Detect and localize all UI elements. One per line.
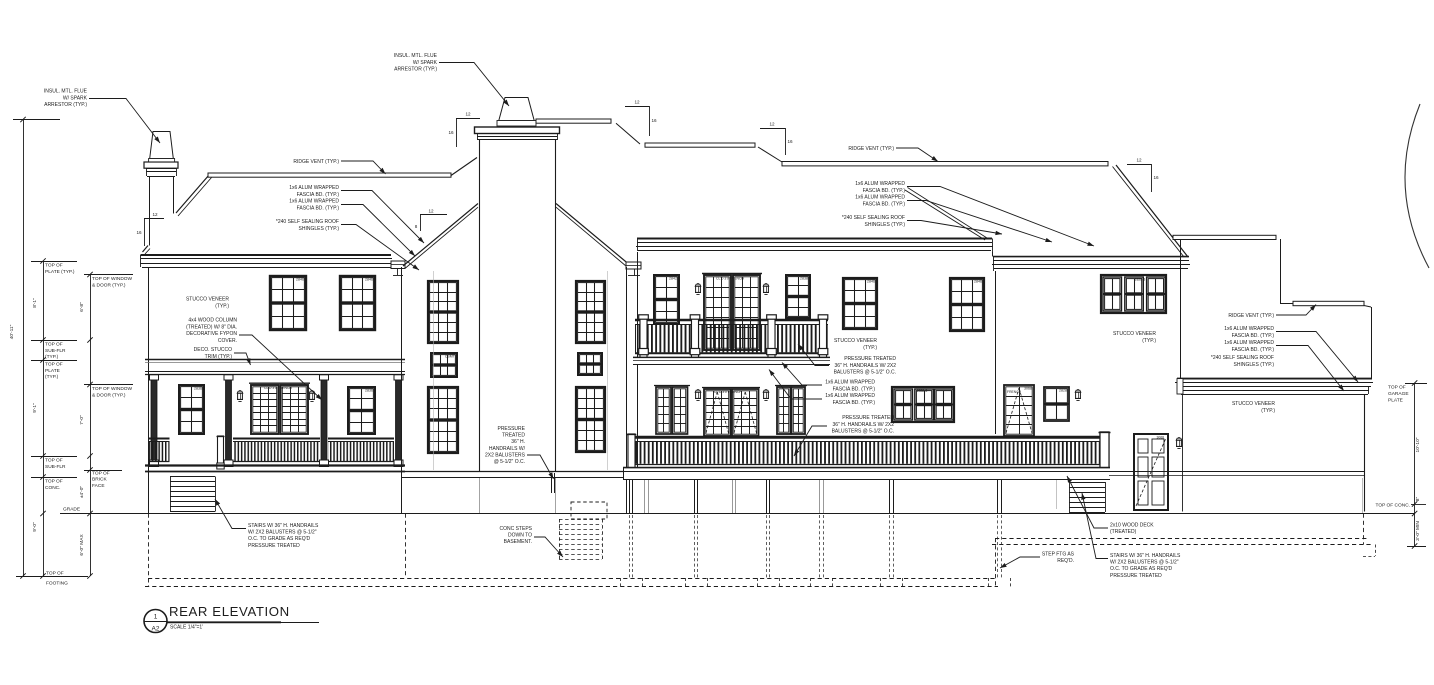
svg-text:FASCIA BD. (TYP.): FASCIA BD. (TYP.) [1232,347,1275,353]
svg-text:16: 16 [651,118,657,123]
svg-text:PLATE: PLATE [45,368,60,374]
svg-text:1x6 ALUM WRAPPED: 1x6 ALUM WRAPPED [825,380,875,386]
svg-text:CSMT: CSMT [445,355,456,359]
svg-text:2828-3: 2828-3 [1135,278,1146,282]
svg-text:SHINGLES (TYP.): SHINGLES (TYP.) [1234,362,1275,368]
svg-text:*240 SELF SEALING ROOF: *240 SELF SEALING ROOF [276,219,339,225]
svg-text:FASCIA BD. (TYP.): FASCIA BD. (TYP.) [833,386,876,392]
svg-text:TOP OF: TOP OF [45,263,63,269]
svg-text:GRADE: GRADE [63,507,80,513]
svg-text:PLATE: PLATE [1388,397,1403,403]
svg-text:SHINGLES (TYP.): SHINGLES (TYP.) [865,222,906,228]
svg-text:DECORATIVE FYPON: DECORATIVE FYPON [186,331,237,337]
svg-text:PLATE (TYP.): PLATE (TYP.) [45,269,75,275]
svg-text:36" H. HANDRAILS W/ 2X2: 36" H. HANDRAILS W/ 2X2 [834,363,896,369]
svg-text:W/ SPARK: W/ SPARK [413,60,438,66]
svg-text:12: 12 [465,112,471,117]
svg-text:TOP OF WINDOW: TOP OF WINDOW [92,276,133,282]
svg-text:7'-0": 7'-0" [79,415,85,425]
svg-text:2846: 2846 [867,280,875,284]
svg-text:3'-0" MIN: 3'-0" MIN [1415,521,1421,541]
svg-text:8'-1": 8'-1" [32,298,38,308]
svg-text:SUB-FLR: SUB-FLR [45,464,66,470]
svg-text:TOP OF: TOP OF [45,458,63,464]
svg-text:3068: 3068 [1156,436,1164,440]
svg-text:SCALE 1/4"=1': SCALE 1/4"=1' [170,625,203,631]
svg-text:CL'D 3'0 FRENCH: CL'D 3'0 FRENCH [264,386,292,390]
svg-text:PRESSURE: PRESSURE [497,426,525,432]
svg-text:RIDGE VENT (TYP.): RIDGE VENT (TYP.) [1228,313,1274,319]
svg-text:FASCIA BD. (TYP.): FASCIA BD. (TYP.) [863,201,906,207]
svg-text:& DOOR (TYP.): & DOOR (TYP.) [92,392,126,398]
svg-text:2842: 2842 [669,277,677,281]
svg-text:6'-8": 6'-8" [79,302,85,312]
svg-text:STUCCO VENEER: STUCCO VENEER [834,338,877,344]
svg-text:TOP OF: TOP OF [45,479,63,485]
svg-text:10'-10": 10'-10" [1415,437,1421,452]
svg-text:*240 SELF SEALING ROOF: *240 SELF SEALING ROOF [842,215,905,221]
svg-text:2846: 2846 [365,278,373,282]
svg-text:CL'D 3'0 FRENCH: CL'D 3'0 FRENCH [714,390,742,394]
svg-text:TOP OF: TOP OF [45,342,63,348]
svg-text:(TYP.): (TYP.) [45,374,59,380]
svg-text:RIDGE VENT (TYP.): RIDGE VENT (TYP.) [848,146,894,152]
svg-text:1: 1 [154,614,158,621]
svg-text:SHINGLES (TYP.): SHINGLES (TYP.) [299,226,340,232]
svg-text:STEP FTG AS: STEP FTG AS [1042,552,1075,558]
svg-text:16: 16 [448,130,454,135]
svg-text:FASCIA BD. (TYP.): FASCIA BD. (TYP.) [833,400,876,406]
svg-text:STUCCO VENEER: STUCCO VENEER [1113,331,1156,337]
svg-text:TOP OF CONC.: TOP OF CONC. [1376,503,1410,509]
svg-text:& DOOR (TYP.): & DOOR (TYP.) [92,282,126,288]
svg-text:PRESSURE TREATED: PRESSURE TREATED [844,356,896,362]
svg-text:2828: 2828 [1059,389,1067,393]
svg-text:12: 12 [634,100,640,105]
svg-text:(TYP.): (TYP.) [215,303,229,309]
svg-text:TREATED: TREATED [502,433,525,439]
svg-text:FRENCH: FRENCH [1007,390,1022,394]
svg-text:TOP OF: TOP OF [46,571,64,577]
svg-text:12: 12 [152,212,158,217]
svg-text:1x6 ALUM WRAPPED: 1x6 ALUM WRAPPED [1224,340,1274,346]
svg-text:*240 SELF SEALING ROOF: *240 SELF SEALING ROOF [1211,355,1274,361]
svg-text:W/ SPARK: W/ SPARK [63,95,88,101]
svg-text:1x6 ALUM WRAPPED: 1x6 ALUM WRAPPED [1224,326,1274,332]
svg-text:2838: 2838 [800,277,808,281]
svg-text:40'-11": 40'-11" [9,324,15,339]
svg-text:1x6 ALUM WRAPPED: 1x6 ALUM WRAPPED [289,185,339,191]
svg-text:GARAGE: GARAGE [1388,391,1409,397]
svg-text:W/ 2X2 BALUSTERS @ 5-1/2": W/ 2X2 BALUSTERS @ 5-1/2" [1110,560,1179,566]
svg-text:INSUL. MTL. FLUE: INSUL. MTL. FLUE [44,89,88,95]
svg-text:16: 16 [136,230,142,235]
svg-text:2846: 2846 [296,278,304,282]
svg-text:16: 16 [787,139,793,144]
svg-text:TOP OF WINDOW: TOP OF WINDOW [92,386,133,392]
svg-text:SUB-FLR: SUB-FLR [45,348,66,354]
svg-text:16: 16 [1153,175,1159,180]
svg-text:6'-0" MAX: 6'-0" MAX [79,534,85,556]
svg-text:FACE: FACE [92,483,105,489]
svg-text:1x6 ALUM WRAPPED: 1x6 ALUM WRAPPED [855,181,905,187]
svg-text:(TYP.): (TYP.) [863,345,877,351]
svg-text:ARRESTOR (TYP.): ARRESTOR (TYP.) [44,102,87,108]
svg-text:2832-3: 2832-3 [917,389,928,393]
svg-text:PRESSURE TREATED: PRESSURE TREATED [842,415,894,421]
svg-text:(TREATED) W/ 8" DIA.: (TREATED) W/ 8" DIA. [186,324,237,330]
svg-text:DECO. STUCCO: DECO. STUCCO [194,347,232,353]
svg-text:A2: A2 [152,626,160,633]
svg-text:(TYP.): (TYP.) [1261,408,1275,414]
svg-text:INSUL. MTL. FLUE: INSUL. MTL. FLUE [394,53,438,59]
svg-text:@ 5-1/2" O.C.: @ 5-1/2" O.C. [494,459,525,465]
svg-text:CONC STEPS: CONC STEPS [499,526,532,532]
svg-text:2836: 2836 [365,389,373,393]
svg-text:(TYP.): (TYP.) [1142,338,1156,344]
svg-text:1x6 ALUM WRAPPED: 1x6 ALUM WRAPPED [855,195,905,201]
svg-text:FOOTING: FOOTING [46,581,68,587]
svg-text:2846: 2846 [974,280,982,284]
svg-text:CL'D 3'0 FRENCH: CL'D 3'0 FRENCH [716,277,744,281]
svg-text:12: 12 [428,209,434,214]
svg-text:DOWN TO: DOWN TO [508,533,532,539]
svg-text:BALUSTERS @ 5-1/2" O.C.: BALUSTERS @ 5-1/2" O.C. [834,370,896,376]
svg-text:2X2 BALUSTERS: 2X2 BALUSTERS [485,452,526,458]
svg-text:TOP OF: TOP OF [92,471,110,477]
svg-text:9'-1": 9'-1" [32,403,38,413]
svg-text:2x10 WOOD DECK: 2x10 WOOD DECK [1110,523,1154,529]
svg-text:FASCIA BD. (TYP.): FASCIA BD. (TYP.) [863,188,906,194]
svg-text:BALUSTERS @ 5-1/2" O.C.: BALUSTERS @ 5-1/2" O.C. [832,429,894,435]
svg-text:O.C. TO GRADE AS REQ'D: O.C. TO GRADE AS REQ'D [1110,566,1173,572]
svg-text:HANDRAILS W/: HANDRAILS W/ [489,446,526,452]
svg-text:TOP OF: TOP OF [45,362,63,368]
svg-text:±4'-0": ±4'-0" [79,486,85,498]
svg-text:STAIRS W/ 36" H. HANDRAILS: STAIRS W/ 36" H. HANDRAILS [248,523,319,529]
svg-text:COVER.: COVER. [218,338,237,344]
svg-text:BASEMENT.: BASEMENT. [504,539,532,545]
svg-text:1x6 ALUM WRAPPED: 1x6 ALUM WRAPPED [289,199,339,205]
svg-text:STUCCO VENEER: STUCCO VENEER [186,297,229,303]
svg-text:RIDGE VENT (TYP.): RIDGE VENT (TYP.) [293,159,339,165]
svg-text:12: 12 [769,122,775,127]
svg-text:12: 12 [1136,158,1142,163]
svg-text:8": 8" [1415,497,1421,502]
svg-text:FASCIA BD. (TYP.): FASCIA BD. (TYP.) [297,205,340,211]
svg-text:TRIM (TYP.): TRIM (TYP.) [205,354,233,360]
svg-text:PRESSURE TREATED: PRESSURE TREATED [248,543,300,549]
svg-text:STAIRS W/ 36" H. HANDRAILS: STAIRS W/ 36" H. HANDRAILS [1110,553,1181,559]
svg-text:4x4 WOOD COLUMN: 4x4 WOOD COLUMN [188,318,237,324]
svg-text:REAR ELEVATION: REAR ELEVATION [169,604,290,619]
svg-text:1x6 ALUM WRAPPED: 1x6 ALUM WRAPPED [825,393,875,399]
svg-text:REQ'D.: REQ'D. [1057,558,1074,564]
svg-text:36" H.: 36" H. [511,439,525,445]
svg-text:ARRESTOR (TYP.): ARRESTOR (TYP.) [394,67,437,73]
svg-text:36" H. HANDRAILS W/ 2X2: 36" H. HANDRAILS W/ 2X2 [832,422,894,428]
svg-text:FASCIA BD. (TYP.): FASCIA BD. (TYP.) [297,192,340,198]
svg-text:O.C. TO GRADE AS REQ'D: O.C. TO GRADE AS REQ'D [248,536,311,542]
svg-text:2836: 2836 [194,387,202,391]
svg-text:9'-0": 9'-0" [32,522,38,532]
svg-text:BRICK: BRICK [92,477,107,483]
svg-text:TOP OF: TOP OF [1388,385,1406,391]
svg-text:PRESSURE TREATED: PRESSURE TREATED [1110,573,1162,579]
svg-text:STUCCO VENEER: STUCCO VENEER [1232,401,1275,407]
svg-text:3068: 3068 [1024,387,1032,391]
svg-text:(TYP.): (TYP.) [45,354,59,360]
svg-text:CONC.: CONC. [45,485,60,491]
svg-text:(TREATED): (TREATED) [1110,529,1137,535]
svg-text:8: 8 [415,224,418,229]
svg-text:FASCIA BD. (TYP.): FASCIA BD. (TYP.) [1232,333,1275,339]
svg-text:W/ 2X2 BALUSTERS @ 5-1/2": W/ 2X2 BALUSTERS @ 5-1/2" [248,530,317,536]
